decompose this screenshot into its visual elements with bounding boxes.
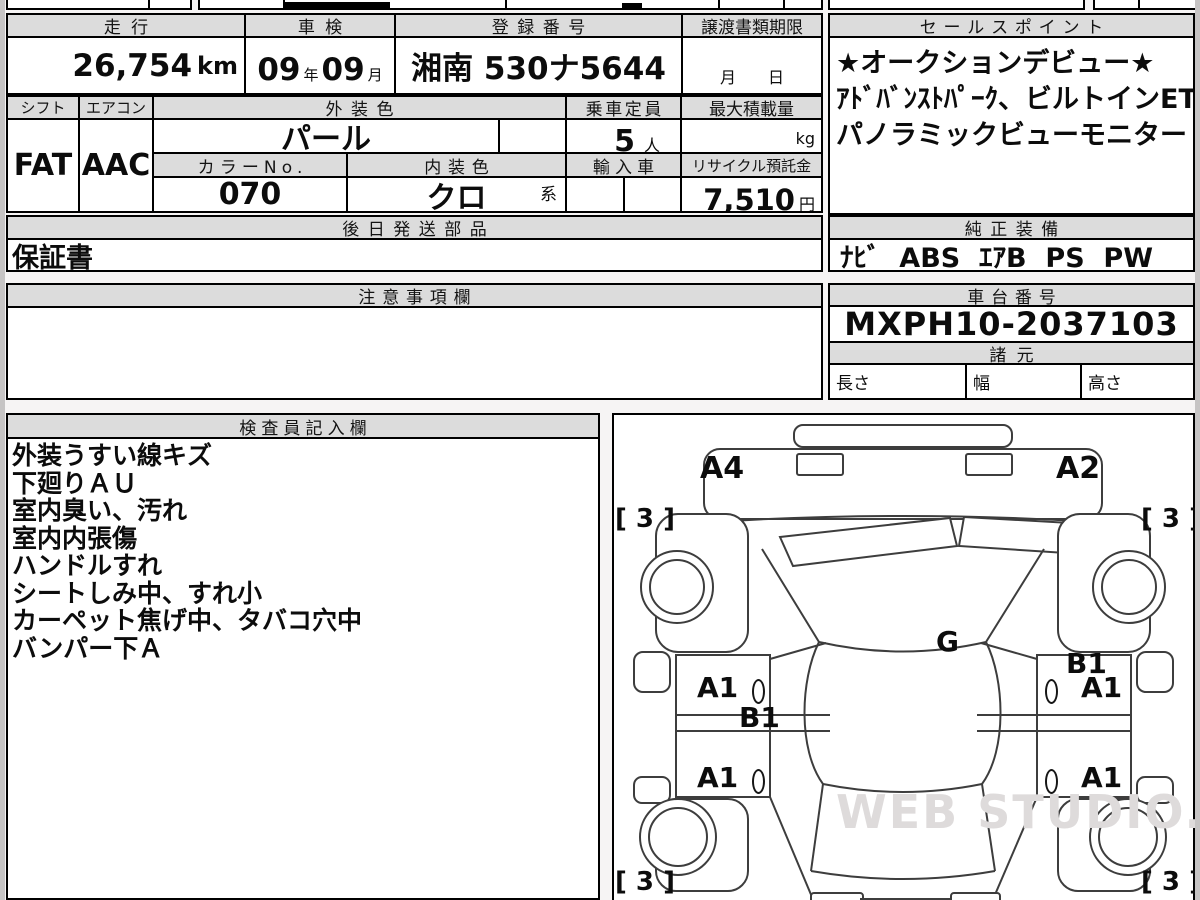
tire-front-right-depth: [ 3 ] — [1141, 504, 1200, 534]
recycle-deposit-header: リサイクル預託金 — [680, 152, 823, 178]
cautions-value — [6, 306, 823, 400]
interior-color-suffix: 系 — [540, 180, 557, 205]
color-no-value: 070 — [152, 176, 348, 213]
exterior-color-extra-cell — [498, 118, 567, 154]
inspector-note: 室内内張傷 — [12, 525, 137, 553]
spec-width-cell: 幅 — [965, 363, 1082, 400]
transfer-deadline-header: 譲渡書類期限 — [681, 13, 823, 38]
import-value-cell-2 — [623, 176, 682, 213]
later-parts-value: 保証書 — [6, 238, 823, 272]
inspector-notes-box: 外装うすい線キズ 下廻りＡＵ 室内臭い、汚れ 室内内張傷 ハンドルすれ シートし… — [6, 437, 600, 900]
equipment-value: ﾅﾋﾞ ABS ｴｱB PS PW — [828, 238, 1195, 272]
later-parts-header: 後日発送部品 — [6, 215, 823, 240]
import-header: 輸入車 — [565, 152, 682, 178]
clipped-text-fragment — [285, 2, 390, 8]
exterior-color-value: パール — [152, 118, 500, 154]
tire-rear-left-depth: [ 3 ] — [615, 867, 675, 897]
door-rear-left-dent-mark — [752, 769, 765, 794]
left-pillar-damage-mark: B1 — [739, 701, 780, 734]
inspection-header: 車検 — [244, 13, 396, 38]
recycle-deposit-value: 7,510 — [703, 183, 795, 213]
auction-sheet: 走行 車検 登録番号 譲渡書類期限 26,754 km 09 年 09 月 湘南… — [0, 0, 1200, 900]
capacity-value-cell: 5 人 — [565, 118, 682, 154]
glass-damage-mark: G — [936, 625, 959, 658]
mileage-value: 26,754 — [72, 48, 192, 84]
interior-color-header: 内装色 — [346, 152, 567, 178]
right-page-edge — [1195, 0, 1200, 900]
door-front-right-dent-mark — [1045, 679, 1058, 704]
import-value-cell-1 — [565, 176, 625, 213]
capacity-value: 5 — [614, 124, 635, 154]
inspection-month-unit: 月 — [365, 64, 383, 85]
transfer-deadline-value: 月 日 — [681, 36, 823, 95]
front-left-damage-mark: A4 — [700, 451, 744, 486]
tire-rear-right-depth: [ 3 ] — [1141, 867, 1200, 897]
inspector-note: シートしみ中、すれ小 — [12, 580, 262, 608]
max-load-header: 最大積載量 — [680, 95, 823, 120]
specs-header: 諸元 — [828, 341, 1195, 365]
door-front-left-damage-mark: A1 — [697, 671, 738, 704]
inspector-note: 下廻りＡＵ — [12, 470, 137, 498]
door-rear-left-damage-mark: A1 — [697, 761, 738, 794]
interior-color-value: クロ — [427, 176, 487, 213]
registration-header: 登録番号 — [394, 13, 683, 38]
sales-point-line: ｱﾄﾞﾊﾞﾝｽﾄﾊﾟｰｸ、ビルトインETC2.0 — [836, 82, 1195, 118]
aircon-header: エアコン — [78, 95, 154, 120]
left-page-edge — [0, 0, 5, 900]
door-rear-right-dent-mark — [1045, 769, 1058, 794]
sales-point-line: パノラミックビューモニター — [836, 118, 1187, 154]
door-rear-right-damage-mark: A1 — [1081, 761, 1122, 794]
chassis-number-value: MXPH10-2037103 — [828, 305, 1195, 343]
exterior-color-header: 外装色 — [152, 95, 567, 120]
sales-point-line: ★オークションデビュー★ — [836, 46, 1154, 82]
sales-points-header: セールスポイント — [828, 13, 1195, 38]
max-load-value-cell: kg — [680, 118, 823, 154]
inspector-note: ハンドルすれ — [12, 552, 162, 580]
clipped-top-row-3 — [828, 0, 1085, 10]
shift-value: FAT — [6, 118, 80, 213]
tire-front-left-depth: [ 3 ] — [615, 504, 675, 534]
clipped-text-fragment — [622, 3, 642, 8]
clipped-top-row-1 — [6, 0, 192, 10]
mileage-header: 走行 — [6, 13, 246, 38]
inspection-year-unit: 年 — [300, 64, 321, 85]
inspector-note: 外装うすい線キズ — [12, 442, 212, 470]
registration-value: 湘南 530ナ5644 — [394, 36, 683, 95]
inspector-note: バンパー下Ａ — [12, 635, 163, 663]
clipped-top-row-4 — [1093, 0, 1199, 10]
inspector-note: 室内臭い、汚れ — [12, 497, 187, 525]
interior-color-value-cell: クロ 系 — [346, 176, 567, 213]
capacity-header: 乗車定員 — [565, 95, 682, 120]
shift-header: シフト — [6, 95, 80, 120]
car-condition-diagram: WEB STUDIO.RU A4 A2 [ 3 ] [ 3 ] G B1 A1 … — [612, 413, 1195, 900]
mileage-value-cell: 26,754 km — [6, 36, 246, 95]
inspection-value-cell: 09 年 09 月 — [244, 36, 396, 95]
sales-points-box: ★オークションデビュー★ ｱﾄﾞﾊﾞﾝｽﾄﾊﾟｰｸ、ビルトインETC2.0 パノ… — [828, 36, 1195, 215]
door-front-right-damage-mark: A1 — [1081, 671, 1122, 704]
spec-length-cell: 長さ — [828, 363, 967, 400]
mileage-unit: km — [197, 52, 238, 80]
recycle-deposit-value-cell: 7,510 円 — [680, 176, 823, 213]
watermark: WEB STUDIO.RU — [836, 785, 1200, 839]
equipment-header: 純正装備 — [828, 215, 1195, 240]
spec-height-cell: 高さ — [1080, 363, 1195, 400]
inspection-year: 09 — [257, 52, 300, 88]
chassis-number-header: 車台番号 — [828, 283, 1195, 307]
inspector-notes-header: 検査員記入欄 — [6, 413, 600, 439]
capacity-unit: 人 — [644, 132, 660, 154]
inspector-note: カーペット焦げ中、タバコ穴中 — [12, 607, 362, 635]
inspection-month: 09 — [322, 52, 365, 88]
cautions-header: 注意事項欄 — [6, 283, 823, 308]
color-no-header: カラーNo. — [152, 152, 348, 178]
recycle-deposit-unit: 円 — [799, 191, 815, 213]
front-right-damage-mark: A2 — [1056, 451, 1100, 486]
aircon-value: AAC — [78, 118, 154, 213]
